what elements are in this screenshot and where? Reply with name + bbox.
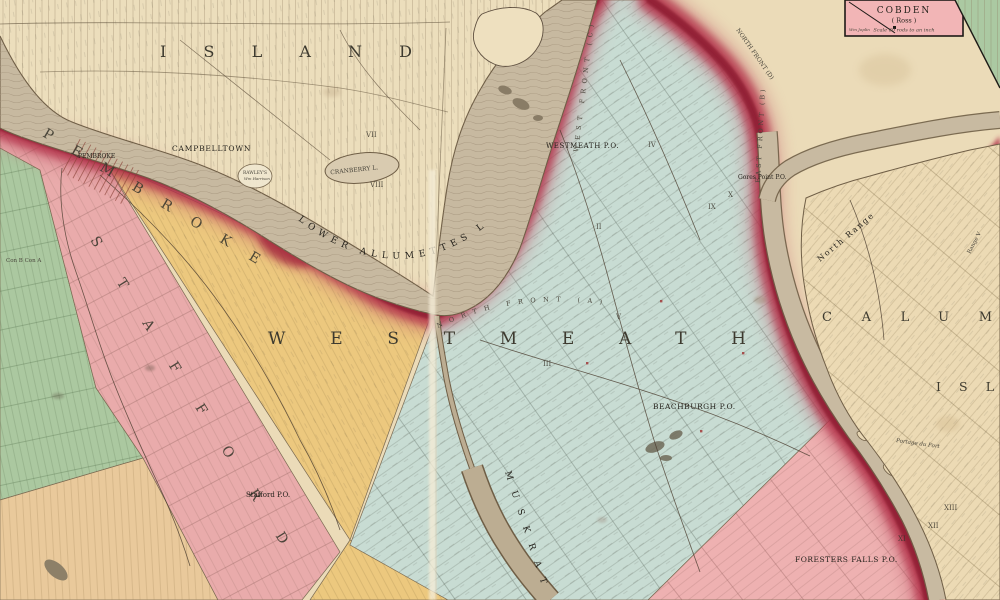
cobden-inset: COBDEN ( Ross ) Scale 60 rods to an inch… xyxy=(845,0,963,36)
numeral: VIII xyxy=(369,181,384,189)
fold-crease xyxy=(429,170,437,600)
numeral: IX xyxy=(708,203,716,211)
label-stafford-po: Stafford P.O. xyxy=(246,491,290,499)
label-campbelltown: CAMPBELLTOWN xyxy=(172,144,251,153)
cobden-inset-title: COBDEN xyxy=(877,6,932,16)
label-foresters-falls-po: FORESTERS FALLS P.O. xyxy=(795,555,898,564)
historical-county-map: COBDEN ( Ross ) Scale 60 rods to an inch… xyxy=(0,0,1000,600)
map-canvas: COBDEN ( Ross ) Scale 60 rods to an inch… xyxy=(0,0,1000,600)
cobden-inset-scale: Scale 60 rods to an inch xyxy=(873,28,934,34)
label-wm-harrison: Wm Harrison xyxy=(244,176,270,181)
label-westmeath-po: WESTMEATH P.O. xyxy=(546,142,619,150)
numeral: XIII xyxy=(944,504,958,512)
label-concessions: Con B Con A xyxy=(6,258,42,264)
label-pembroke-town: PEMBROKE xyxy=(78,153,115,160)
numeral: V xyxy=(615,313,622,321)
numeral: II xyxy=(596,223,602,231)
cobden-inset-subtitle: ( Ross ) xyxy=(892,17,917,25)
numeral: XII xyxy=(928,522,939,530)
numeral: VII xyxy=(365,131,377,139)
label-beachburgh-po: BEACHBURGH P.O. xyxy=(653,402,736,411)
numeral: IV xyxy=(648,141,657,149)
pond xyxy=(660,455,672,461)
numeral: XI xyxy=(898,535,906,543)
numeral: X xyxy=(728,191,733,199)
label-westmeath-township: WESTMEATH xyxy=(268,329,746,349)
islet xyxy=(533,115,543,121)
numeral: III xyxy=(543,360,552,368)
cobden-inset-owner: Wm Joplin xyxy=(849,27,870,32)
